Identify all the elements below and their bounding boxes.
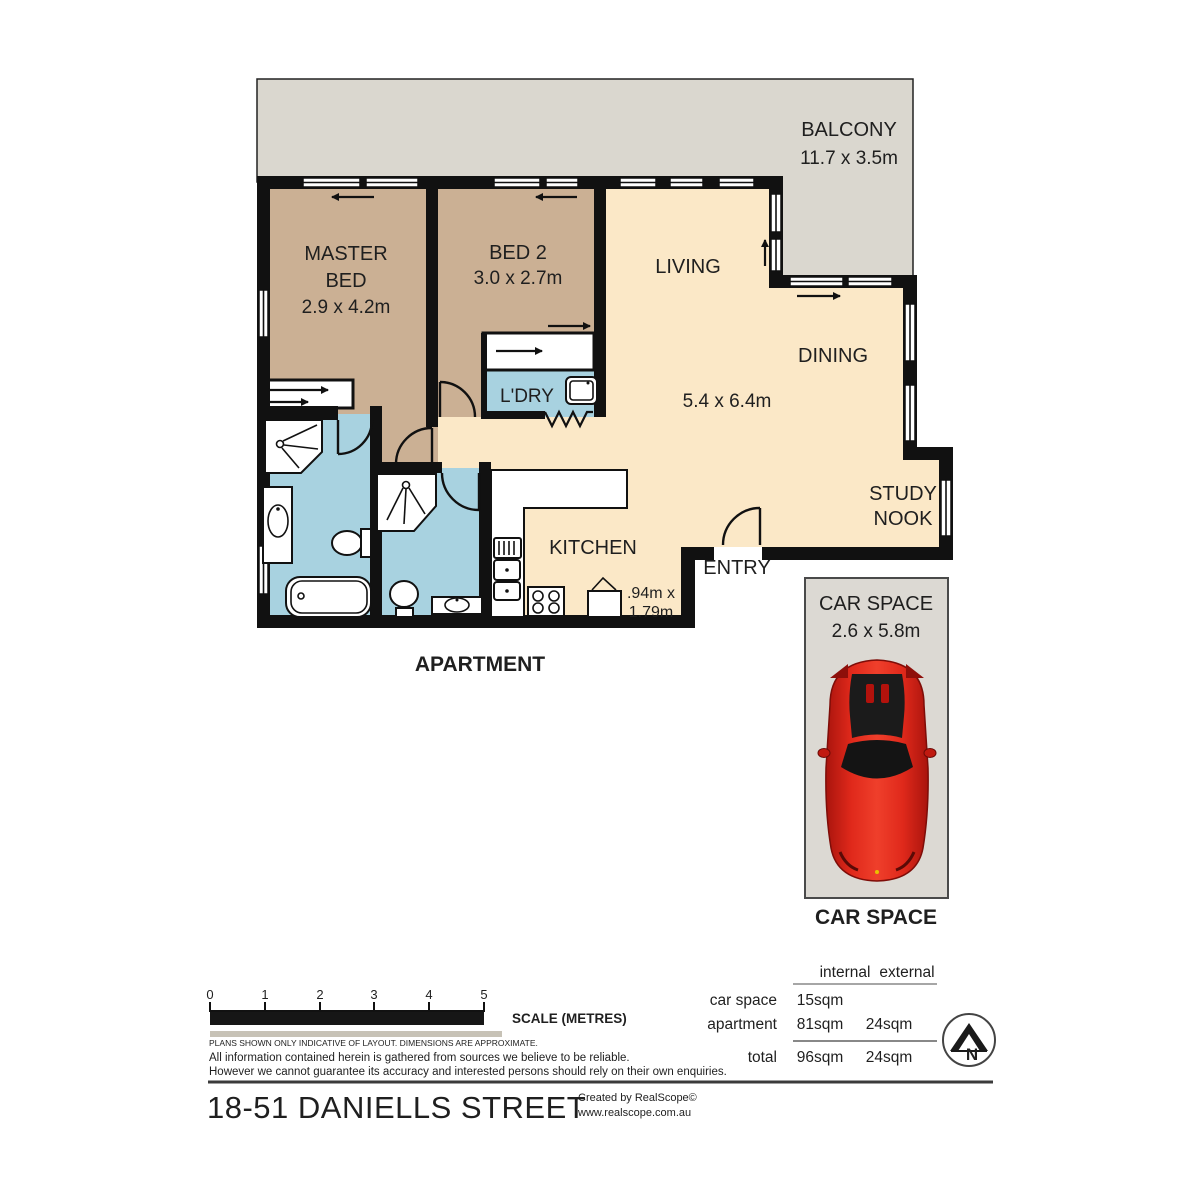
scale-tick-0: 0	[206, 987, 213, 1002]
scale-bar: 0 1 2 3 4 5 SCALE (METRES)	[206, 987, 626, 1037]
disclaimer-line-2: However we cannot guarantee its accuracy…	[209, 1066, 727, 1078]
study-nook-label-2: NOOK	[874, 508, 934, 530]
table-row-carspace-label: car space	[710, 992, 777, 1009]
window-top-bed2	[494, 178, 578, 187]
window-top-living	[620, 178, 754, 187]
car-space-label: CAR SPACE	[819, 593, 933, 615]
table-row-apartment-label: apartment	[707, 1016, 777, 1033]
table-row-carspace-internal: 15sqm	[797, 992, 844, 1009]
living-dims: 5.4 x 6.4m	[683, 391, 772, 412]
window-top-master	[303, 178, 418, 187]
north-compass-icon: N	[943, 1014, 995, 1066]
floorplan-page: BALCONY 11.7 x 3.5m MASTER BED 2.9 x 4.2…	[0, 0, 1200, 1200]
scale-tick-2: 2	[316, 987, 323, 1002]
apartment-caption: APARTMENT	[415, 653, 545, 676]
car-illustration	[818, 660, 936, 881]
balcony-label: BALCONY	[801, 119, 897, 141]
floorplan-canvas: BALCONY 11.7 x 3.5m MASTER BED 2.9 x 4.2…	[0, 0, 1200, 1200]
scale-tick-1: 1	[261, 987, 268, 1002]
bed2-label: BED 2	[489, 242, 547, 264]
cooktop	[528, 587, 564, 616]
living-label: LIVING	[655, 256, 721, 278]
kitchen-sink	[494, 560, 520, 600]
scale-tick-5: 5	[480, 987, 487, 1002]
kitchen-label: KITCHEN	[549, 537, 637, 559]
table-row-total-label: total	[748, 1049, 777, 1066]
credit-line-1: Created by RealScope©	[578, 1092, 697, 1104]
ensuite-vanity	[263, 487, 292, 563]
master-bed-label-1: MASTER	[304, 243, 387, 265]
table-header-external: external	[879, 964, 934, 981]
window-master-left	[259, 290, 268, 337]
master-bed-dims: 2.9 x 4.2m	[302, 297, 391, 318]
area-table: internal external car space 15sqm apartm…	[707, 964, 937, 1066]
table-row-apartment-internal: 81sqm	[797, 1016, 844, 1033]
laundry-label: L'DRY	[500, 386, 554, 407]
master-bed-label-2: BED	[325, 270, 366, 292]
window-study-nook	[941, 480, 951, 536]
ensuite-toilet	[332, 529, 371, 557]
bathtub	[286, 577, 371, 617]
study-nook-label-1: STUDY	[869, 483, 937, 505]
entry-label: ENTRY	[703, 557, 770, 579]
nook-dims-1: .94m x	[627, 585, 675, 602]
scale-tick-4: 4	[425, 987, 432, 1002]
car-space-dims: 2.6 x 5.8m	[832, 621, 921, 642]
dining-label: DINING	[798, 345, 868, 367]
table-header-internal: internal	[820, 964, 871, 981]
disclaimer-small: PLANS SHOWN ONLY INDICATIVE OF LAYOUT. D…	[209, 1038, 538, 1048]
car-space-caption: CAR SPACE	[815, 906, 937, 929]
master-robe	[263, 380, 353, 408]
scale-tick-3: 3	[370, 987, 377, 1002]
table-row-apartment-external: 24sqm	[866, 1016, 913, 1033]
bed2-dims: 3.0 x 2.7m	[474, 268, 563, 289]
street-address-title: 18-51 DANIELLS STREET	[207, 1090, 586, 1125]
bathroom2-basin	[432, 597, 482, 614]
window-balcony-bottom	[790, 277, 892, 286]
table-row-total-internal: 96sqm	[797, 1049, 844, 1066]
nook-dims-2: 1.79m	[629, 604, 673, 621]
window-balcony-side	[771, 194, 781, 271]
compass-letter: N	[966, 1045, 978, 1064]
fridge	[494, 538, 521, 558]
laundry-tub	[566, 377, 597, 404]
disclaimer-line-1: All information contained herein is gath…	[209, 1052, 630, 1064]
credit-line-2: www.realscope.com.au	[577, 1107, 691, 1119]
scale-label: SCALE (METRES)	[512, 1011, 627, 1026]
balcony-dims: 11.7 x 3.5m	[800, 148, 898, 169]
table-row-total-external: 24sqm	[866, 1049, 913, 1066]
